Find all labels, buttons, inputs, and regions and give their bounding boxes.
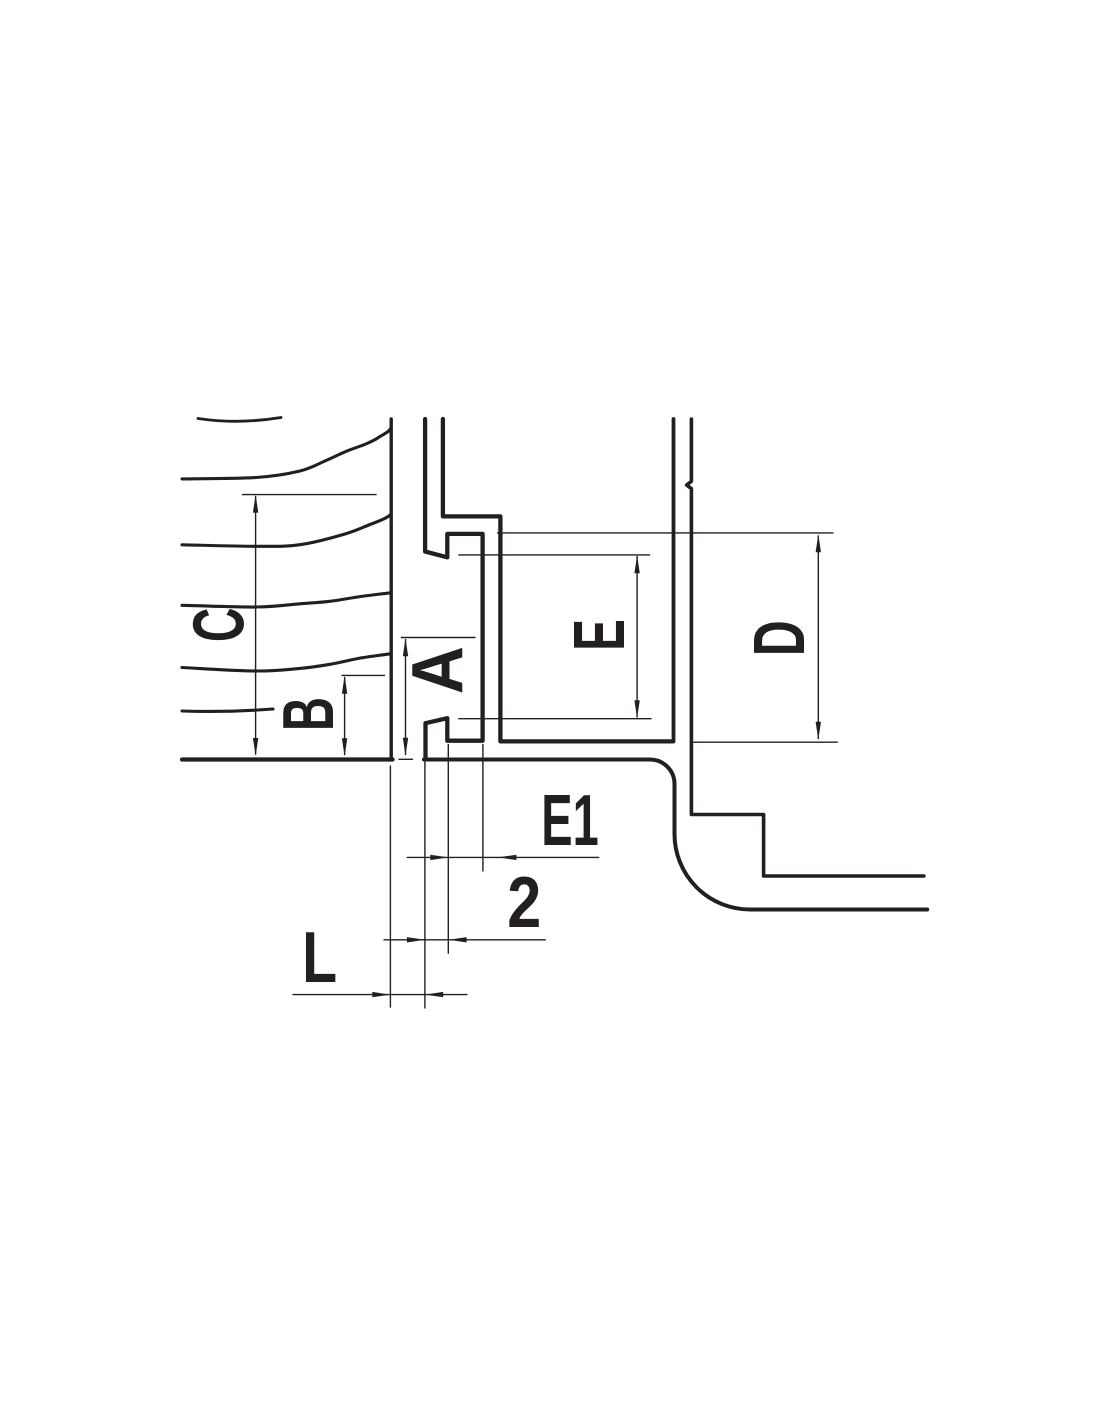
svg-text:L: L bbox=[302, 918, 337, 998]
svg-text:C: C bbox=[179, 608, 259, 643]
svg-text:E1: E1 bbox=[541, 781, 599, 861]
svg-text:E: E bbox=[560, 619, 640, 651]
svg-text:B: B bbox=[269, 697, 349, 731]
svg-text:2: 2 bbox=[507, 863, 541, 943]
svg-text:D: D bbox=[740, 620, 820, 656]
svg-text:A: A bbox=[398, 646, 478, 694]
